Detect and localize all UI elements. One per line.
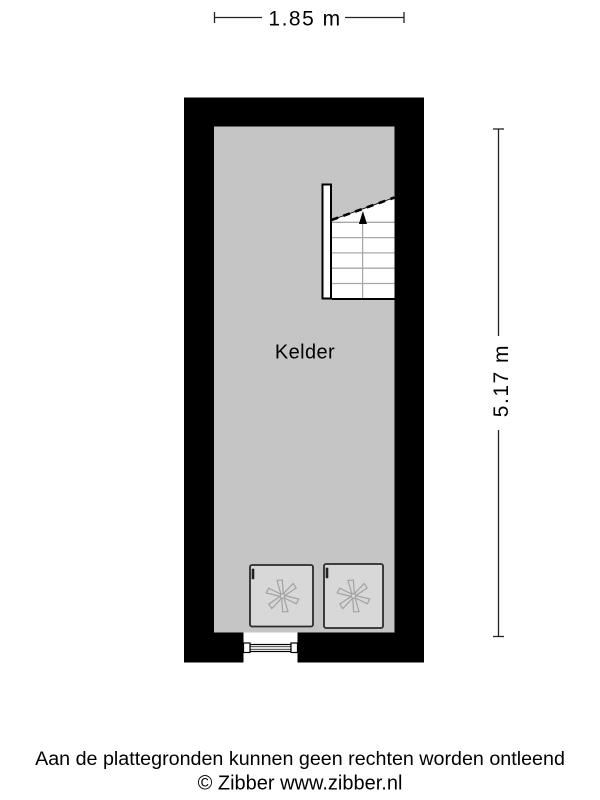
svg-text:Aan de plattegronden kunnen ge: Aan de plattegronden kunnen geen rechten…: [35, 748, 565, 770]
svg-text:© Zibber www.zibber.nl: © Zibber www.zibber.nl: [198, 773, 403, 795]
svg-text:1.85 m: 1.85 m: [268, 7, 341, 30]
svg-text:Kelder: Kelder: [275, 342, 335, 364]
svg-text:5.17 m: 5.17 m: [490, 344, 513, 417]
